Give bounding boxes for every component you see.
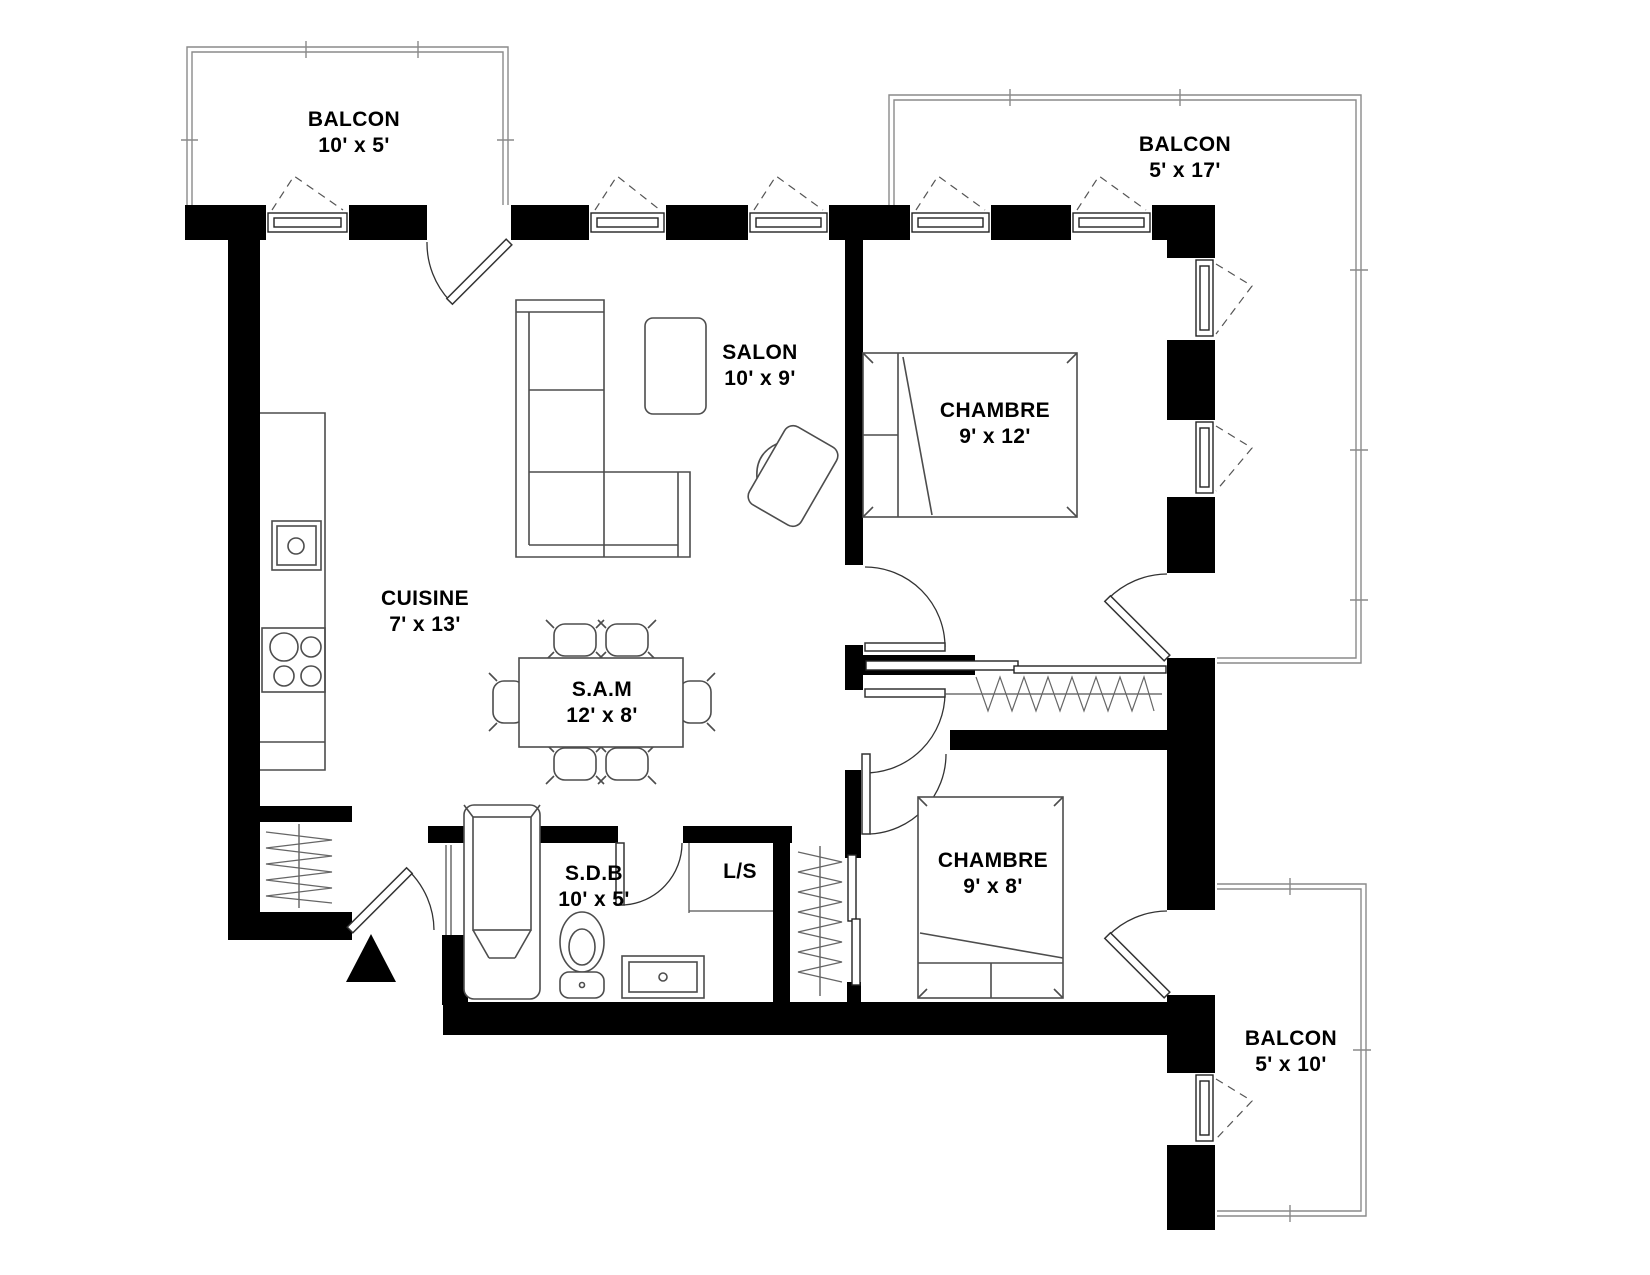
room-label-balcon-top-right: BALCON 5' x 17' bbox=[1139, 132, 1231, 184]
window-north-3 bbox=[750, 176, 827, 232]
room-label-salon: SALON 10' x 9' bbox=[722, 340, 798, 392]
window-north-1 bbox=[268, 176, 347, 232]
room-name: S.A.M bbox=[566, 677, 638, 703]
window-east-1 bbox=[1196, 260, 1252, 336]
room-name: SALON bbox=[722, 340, 798, 366]
room-label-chambre-1: CHAMBRE 9' x 12' bbox=[940, 398, 1050, 450]
room-label-balcon-top-left: BALCON 10' x 5' bbox=[308, 107, 400, 159]
room-dims: 12' x 8' bbox=[566, 703, 638, 729]
window-east-3 bbox=[1196, 1075, 1252, 1141]
room-label-chambre-2: CHAMBRE 9' x 8' bbox=[938, 848, 1048, 900]
kitchen-counter bbox=[260, 413, 325, 770]
stove-cooktop bbox=[262, 628, 325, 692]
window-north-4 bbox=[912, 176, 989, 232]
door-chambre1-balcony bbox=[1105, 574, 1170, 661]
vanity-sink bbox=[622, 956, 704, 998]
closet-entry bbox=[266, 824, 332, 908]
window-east-2 bbox=[1196, 422, 1252, 493]
door-balcony-salon bbox=[427, 239, 512, 304]
floor-plan: BALCON 10' x 5' BALCON 5' x 17' SALON 10… bbox=[0, 0, 1650, 1275]
room-dims: 5' x 10' bbox=[1245, 1052, 1337, 1078]
room-dims: 10' x 5' bbox=[558, 887, 630, 913]
room-dims: 10' x 5' bbox=[308, 133, 400, 159]
room-dims: 9' x 12' bbox=[940, 424, 1050, 450]
room-label-ls: L/S bbox=[723, 859, 757, 885]
room-label-balcon-bottom-right: BALCON 5' x 10' bbox=[1245, 1026, 1337, 1078]
room-name: BALCON bbox=[1139, 132, 1231, 158]
room-dims: 9' x 8' bbox=[938, 874, 1048, 900]
window-north-2 bbox=[591, 176, 664, 232]
room-dims: 10' x 9' bbox=[722, 366, 798, 392]
window-north-5 bbox=[1073, 176, 1150, 232]
room-name: BALCON bbox=[1245, 1026, 1337, 1052]
room-name: S.D.B bbox=[558, 861, 630, 887]
door-hall bbox=[865, 689, 945, 773]
room-name: CHAMBRE bbox=[940, 398, 1050, 424]
entry-arrow-marker bbox=[346, 934, 396, 982]
floor-plan-drawing bbox=[0, 0, 1650, 1275]
room-label-sam: S.A.M 12' x 8' bbox=[566, 677, 638, 729]
armchair bbox=[738, 419, 841, 530]
room-name: CUISINE bbox=[381, 586, 469, 612]
door-chambre1-hall bbox=[865, 567, 945, 651]
kitchen-sink bbox=[272, 521, 321, 570]
room-dims: 7' x 13' bbox=[381, 612, 469, 638]
room-name: L/S bbox=[723, 859, 757, 885]
room-name: CHAMBRE bbox=[938, 848, 1048, 874]
closet-hall bbox=[866, 661, 1166, 711]
bathtub bbox=[464, 805, 540, 999]
closet-chambre2 bbox=[798, 846, 860, 996]
room-label-cuisine: CUISINE 7' x 13' bbox=[381, 586, 469, 638]
room-label-sdb: S.D.B 10' x 5' bbox=[558, 861, 630, 913]
coffee-table bbox=[645, 318, 706, 414]
door-entry bbox=[347, 868, 434, 933]
door-chambre2-balcony bbox=[1105, 911, 1170, 998]
room-dims: 5' x 17' bbox=[1139, 158, 1231, 184]
toilet bbox=[560, 912, 604, 998]
room-name: BALCON bbox=[308, 107, 400, 133]
